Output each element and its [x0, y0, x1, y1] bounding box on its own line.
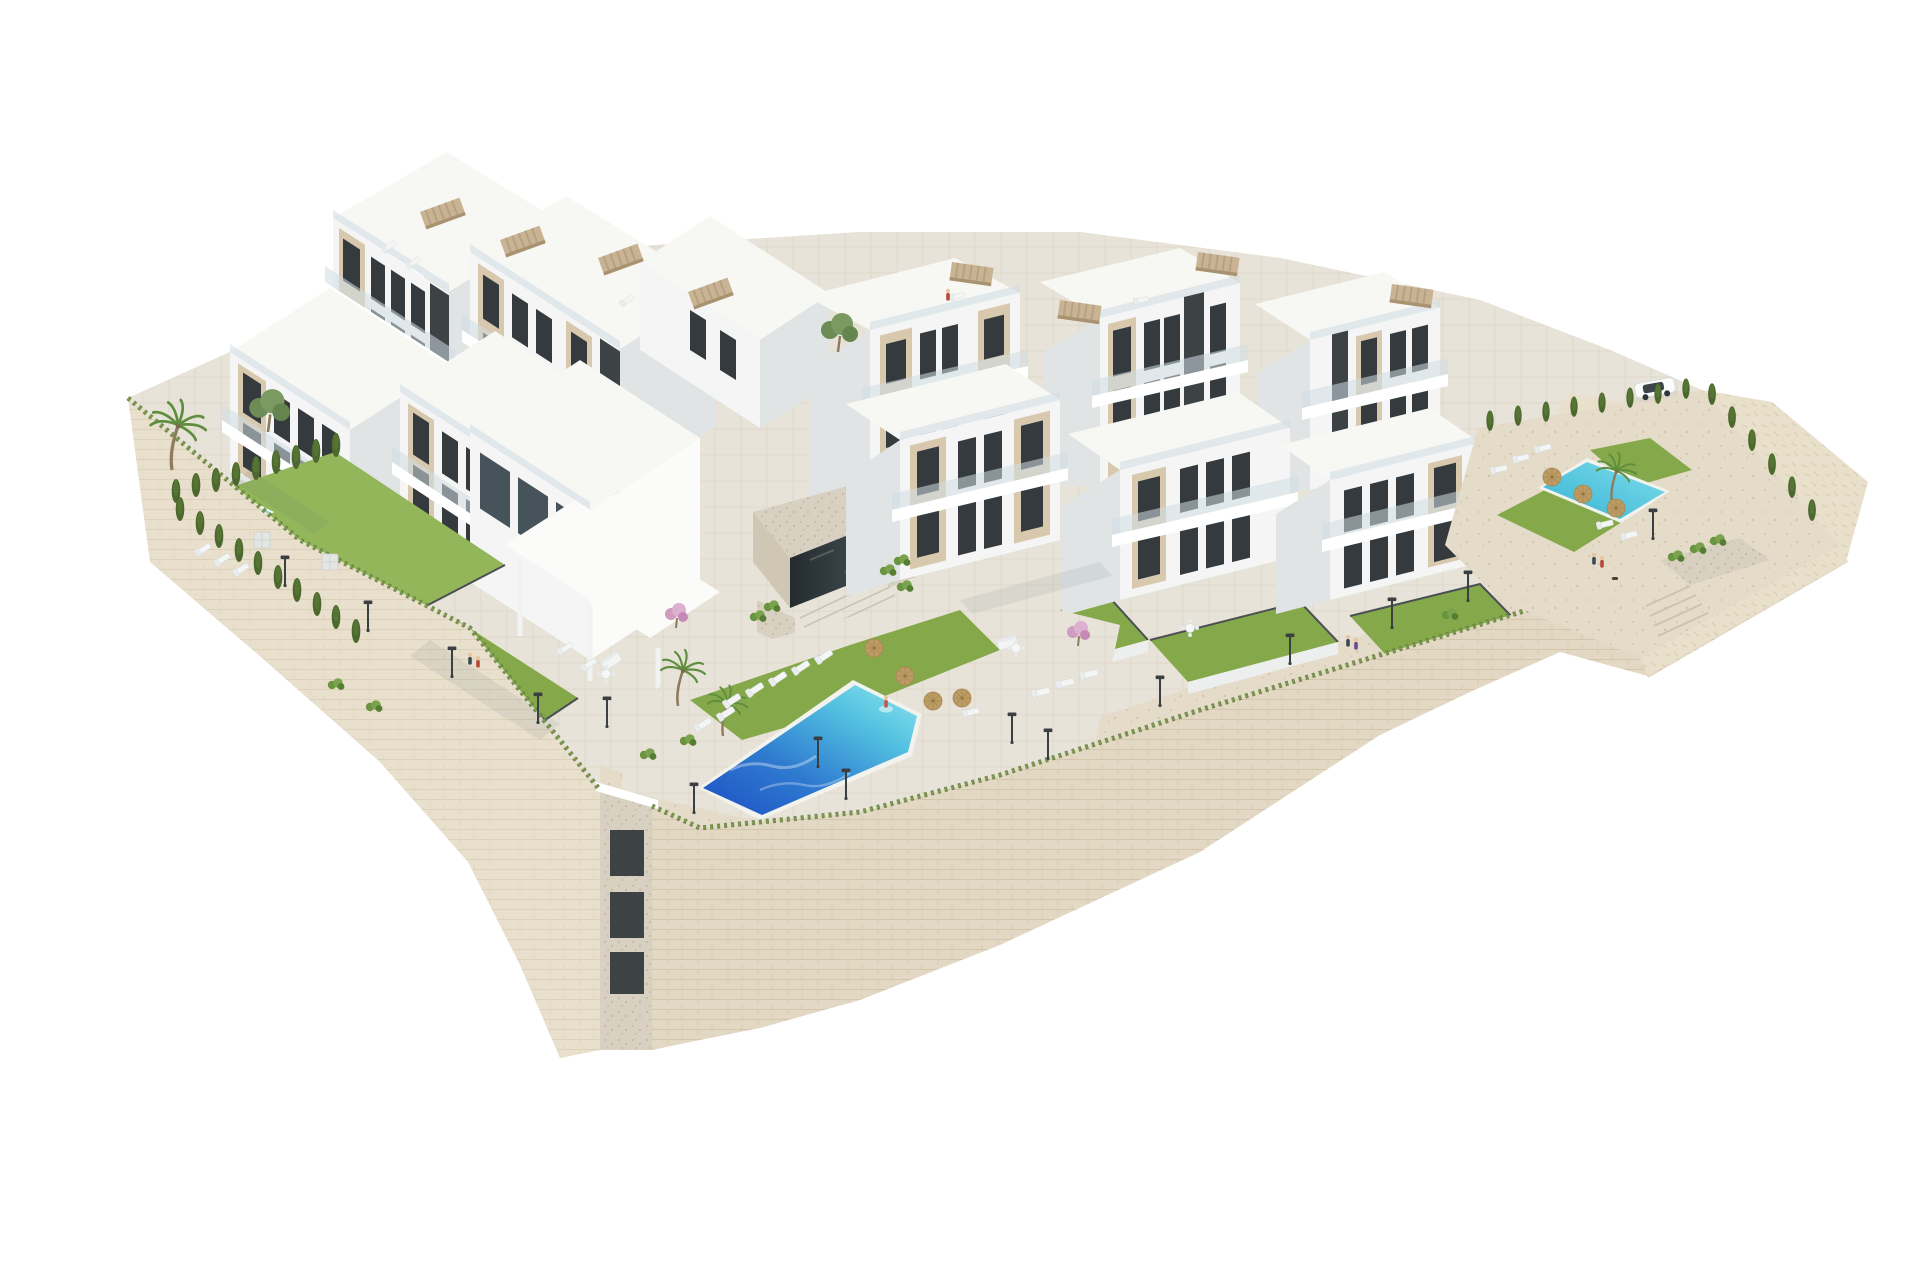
cypress-tree: [272, 450, 281, 474]
cypress-tree: [252, 456, 261, 480]
cypress-tree: [332, 433, 341, 457]
aerial-render: [0, 0, 1920, 1280]
cypress-tree: [1598, 392, 1605, 412]
straw-umbrella: [896, 667, 914, 685]
cypress-tree: [254, 551, 263, 575]
cypress-tree: [1654, 383, 1661, 403]
cypress-tree: [212, 468, 221, 492]
cypress-tree: [1542, 401, 1549, 421]
cypress-tree: [274, 565, 283, 589]
straw-umbrella: [953, 689, 971, 707]
cypress-tree: [1708, 383, 1716, 405]
straw-umbrella: [865, 639, 883, 657]
person: [1354, 638, 1358, 650]
cypress-tree: [215, 524, 224, 548]
straw-umbrella: [924, 692, 942, 710]
square-parasol: [322, 554, 338, 570]
cypress-tree: [293, 578, 302, 602]
cypress-tree: [1728, 406, 1736, 428]
cypress-tree: [1748, 429, 1756, 451]
cypress-tree: [192, 473, 201, 497]
person: [884, 696, 888, 708]
cypress-tree: [1486, 410, 1493, 430]
cypress-tree: [312, 439, 321, 463]
person: [1346, 635, 1350, 647]
square-parasol: [254, 532, 270, 548]
cypress-tree: [1626, 387, 1633, 407]
cypress-tree: [1682, 378, 1689, 398]
cypress-tree: [1570, 396, 1577, 416]
straw-umbrella: [1607, 499, 1625, 517]
cypress-tree: [292, 445, 301, 469]
straw-umbrella: [1574, 485, 1592, 503]
person: [1600, 556, 1604, 568]
render-canvas: Photorealistic aerial render on a white …: [0, 0, 1920, 1280]
cypress-tree: [232, 462, 241, 486]
cypress-tree: [235, 538, 244, 562]
stair-lift-shaft: [596, 782, 658, 1050]
cypress-tree: [1768, 453, 1776, 475]
person: [1592, 553, 1596, 565]
cypress-tree: [352, 619, 361, 643]
cypress-tree: [1514, 405, 1521, 425]
person: [946, 289, 950, 301]
dog: [1612, 577, 1618, 580]
cypress-tree: [313, 592, 322, 616]
cypress-tree: [1788, 476, 1796, 498]
person: [476, 656, 480, 668]
cypress-tree: [1808, 499, 1816, 521]
straw-umbrella: [1543, 468, 1561, 486]
cypress-tree: [332, 605, 341, 629]
cypress-tree: [176, 497, 185, 521]
person: [468, 653, 472, 665]
cypress-tree: [196, 511, 205, 535]
